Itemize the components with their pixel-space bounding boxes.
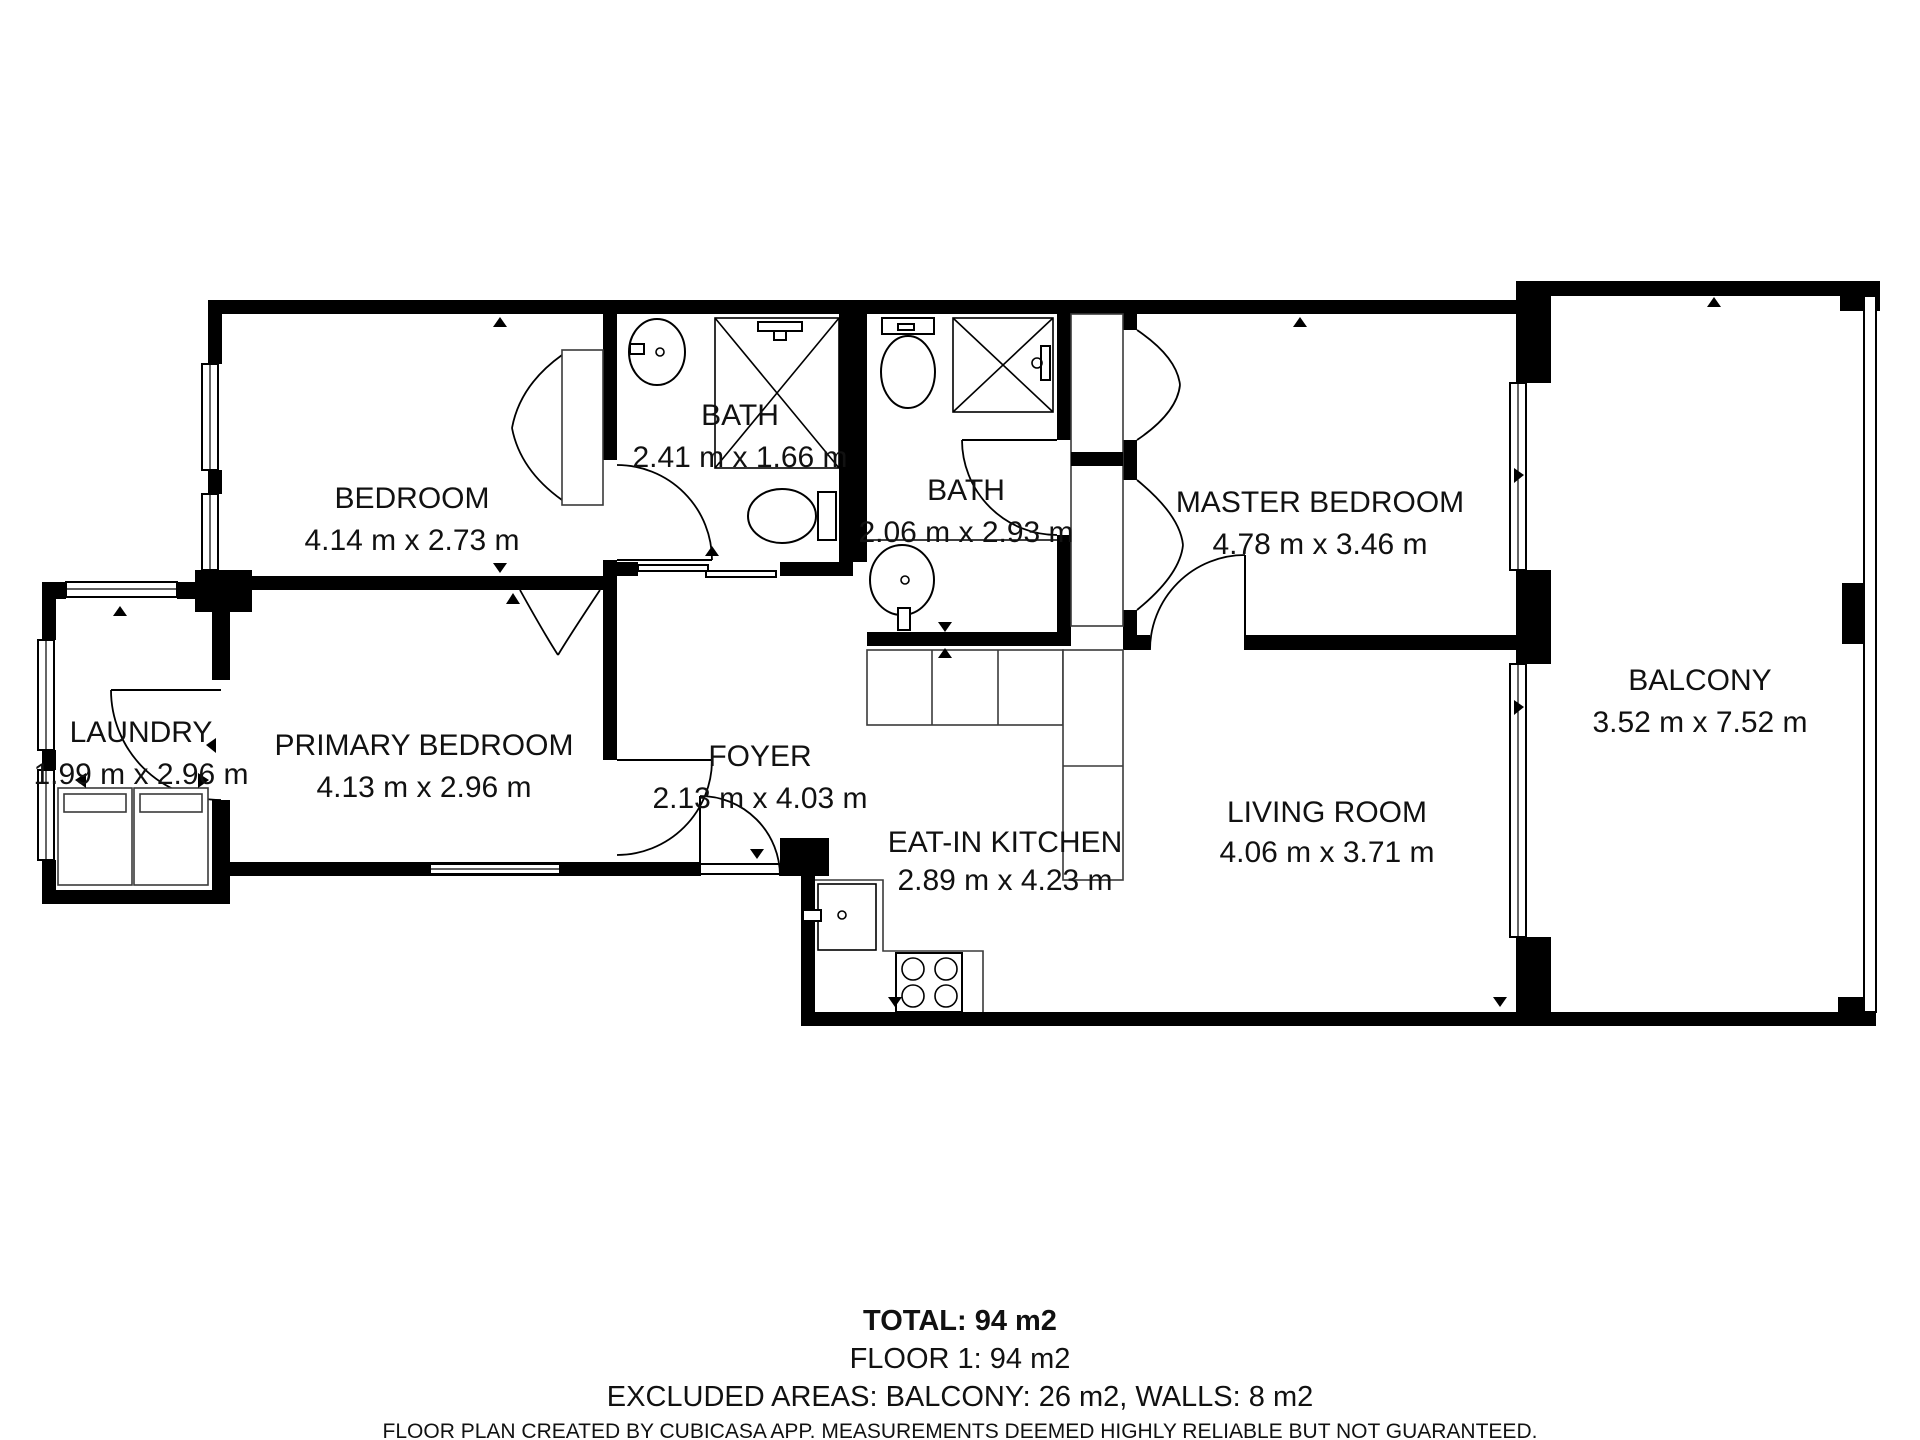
total-area-text: TOTAL: 94 m2 — [863, 1305, 1057, 1337]
room-name: BALCONY — [1628, 664, 1771, 697]
sink-icon — [870, 545, 934, 630]
dryer-icon — [134, 788, 208, 885]
room-dims: 2.13 m x 4.03 m — [652, 782, 867, 815]
kitchen-cabinet-row — [867, 650, 1063, 725]
shower-icon — [953, 318, 1053, 412]
room-dims: 4.06 m x 3.71 m — [1219, 836, 1434, 869]
room-name: BATH — [701, 399, 779, 432]
room-name: BATH — [927, 474, 1005, 507]
summary-block: TOTAL: 94 m2 FLOOR 1: 94 m2 EXCLUDED ARE… — [383, 1305, 1538, 1440]
floor-area-text: FLOOR 1: 94 m2 — [850, 1343, 1071, 1375]
room-label-master-bedroom: MASTER BEDROOM 4.78 m x 3.46 m — [1176, 486, 1464, 561]
toilet-icon — [881, 318, 935, 408]
primary-wardrobe-bifold — [520, 590, 600, 655]
bedroom-wardrobe-bifold — [512, 355, 562, 500]
room-name: EAT-IN KITCHEN — [888, 826, 1122, 859]
room-name: FOYER — [708, 740, 811, 773]
bedroom-window — [202, 364, 218, 470]
master-closet — [1071, 314, 1123, 626]
bath-sliding-door — [638, 565, 776, 577]
sink-icon — [629, 319, 685, 385]
floor-plan-drawing: BEDROOM 4.14 m x 2.73 m BATH 2.41 m x 1.… — [0, 0, 1920, 1440]
excluded-areas-text: EXCLUDED AREAS: BALCONY: 26 m2, WALLS: 8… — [607, 1381, 1313, 1413]
master-closet-bifold — [1137, 330, 1180, 440]
room-name: BEDROOM — [334, 482, 489, 515]
room-dims: 4.78 m x 3.46 m — [1212, 528, 1427, 561]
room-dims: 1.99 m x 2.96 m — [33, 758, 248, 791]
room-dims: 2.06 m x 2.93 m — [858, 516, 1073, 549]
room-dims: 4.14 m x 2.73 m — [304, 524, 519, 557]
floor-plan-page: BEDROOM 4.14 m x 2.73 m BATH 2.41 m x 1.… — [0, 0, 1920, 1440]
laundry-top-window — [66, 582, 177, 597]
room-dims: 3.52 m x 7.52 m — [1592, 706, 1807, 739]
room-label-bath-2: BATH 2.06 m x 2.93 m — [858, 474, 1073, 549]
room-dims: 2.41 m x 1.66 m — [632, 441, 847, 474]
room-name: LIVING ROOM — [1227, 796, 1427, 829]
room-label-balcony: BALCONY 3.52 m x 7.52 m — [1592, 664, 1807, 739]
washer-icon — [58, 788, 132, 885]
primary-bedroom-window — [430, 864, 560, 874]
room-label-primary-bedroom: PRIMARY BEDROOM 4.13 m x 2.96 m — [275, 729, 574, 804]
room-label-bath-1: BATH 2.41 m x 1.66 m — [632, 399, 847, 474]
room-label-foyer: FOYER 2.13 m x 4.03 m — [652, 740, 867, 815]
stove-icon — [896, 953, 962, 1012]
bedroom-window — [202, 494, 218, 570]
bedroom-door — [617, 465, 712, 560]
room-dims: 2.89 m x 4.23 m — [897, 864, 1112, 897]
room-label-bedroom: BEDROOM 4.14 m x 2.73 m — [304, 482, 519, 557]
disclaimer-text: FLOOR PLAN CREATED BY CUBICASA APP. MEAS… — [383, 1420, 1538, 1440]
balcony-rail — [1864, 296, 1876, 1012]
room-name: LAUNDRY — [70, 716, 213, 749]
laundry-window — [38, 640, 54, 750]
room-label-laundry: LAUNDRY 1.99 m x 2.96 m — [33, 716, 248, 791]
toilet-icon — [748, 489, 836, 543]
master-bedroom-door — [1150, 555, 1245, 650]
room-dims: 4.13 m x 2.96 m — [316, 771, 531, 804]
room-name: PRIMARY BEDROOM — [275, 729, 574, 762]
bedroom-closet — [562, 350, 603, 505]
room-name: MASTER BEDROOM — [1176, 486, 1464, 519]
room-label-living-room: LIVING ROOM 4.06 m x 3.71 m — [1219, 796, 1434, 869]
entry-threshold — [700, 864, 780, 874]
